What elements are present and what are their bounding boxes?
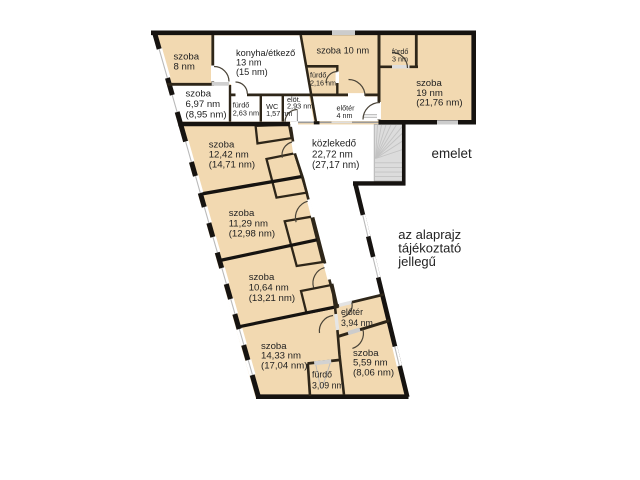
svg-text:10,64 nm: 10,64 nm (249, 283, 289, 294)
svg-text:4 nm: 4 nm (337, 111, 353, 120)
svg-text:3,94 nm: 3,94 nm (341, 318, 373, 328)
svg-text:szoba: szoba (249, 272, 275, 283)
svg-text:(27,17 nm): (27,17 nm) (312, 160, 359, 171)
svg-text:emelet: emelet (432, 146, 472, 161)
svg-text:fürdő: fürdő (312, 370, 332, 380)
svg-text:8 nm: 8 nm (174, 62, 195, 73)
svg-text:3 nm: 3 nm (392, 54, 408, 63)
svg-text:2,16 nm: 2,16 nm (310, 79, 336, 88)
svg-text:(15 nm): (15 nm) (236, 67, 268, 77)
svg-text:szoba 10 nm: szoba 10 nm (317, 46, 370, 56)
svg-text:jellegű: jellegű (397, 254, 436, 269)
svg-text:(13,21 nm): (13,21 nm) (249, 293, 295, 304)
svg-text:(8,95 nm): (8,95 nm) (186, 109, 227, 120)
svg-text:13 nm: 13 nm (236, 58, 262, 68)
svg-text:(21,76 nm): (21,76 nm) (416, 98, 462, 109)
svg-text:konyha/étkező: konyha/étkező (236, 48, 295, 58)
svg-text:3,09 nm: 3,09 nm (312, 380, 344, 390)
svg-text:(12,98 nm): (12,98 nm) (229, 229, 275, 240)
svg-text:2,93 nm: 2,93 nm (287, 102, 313, 111)
svg-text:(8,06 nm): (8,06 nm) (353, 367, 394, 378)
svg-text:közlekedő: közlekedő (312, 139, 357, 150)
svg-text:2,63 nm: 2,63 nm (233, 109, 259, 118)
svg-text:(17,04 nm): (17,04 nm) (261, 360, 307, 371)
svg-text:22,72 nm: 22,72 nm (312, 149, 353, 160)
svg-text:(14,71 nm): (14,71 nm) (209, 159, 255, 170)
svg-text:előtér: előtér (341, 307, 363, 317)
